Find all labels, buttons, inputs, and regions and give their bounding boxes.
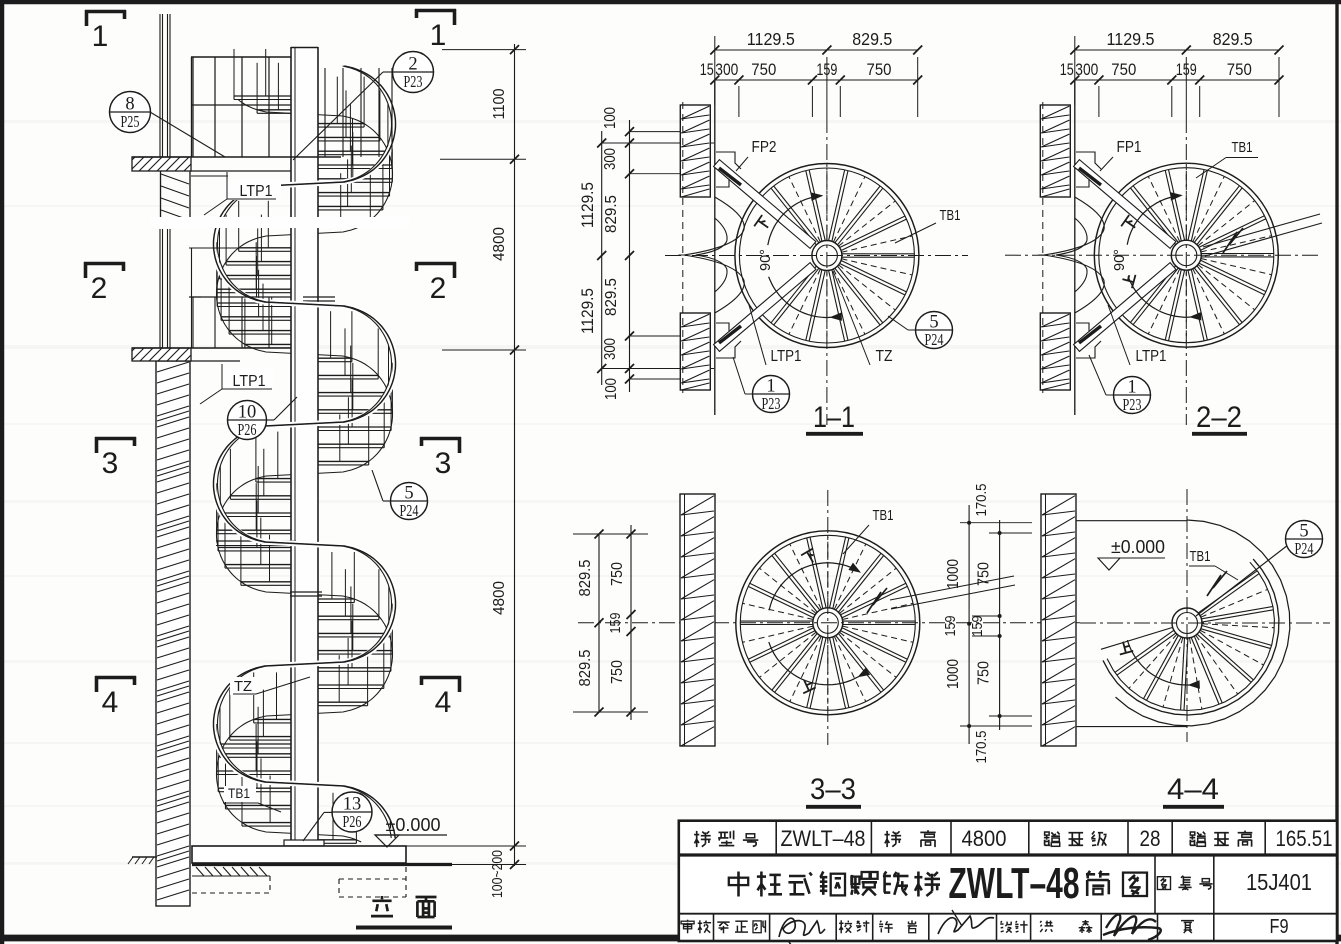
svg-text:LTP1: LTP1 bbox=[1136, 348, 1167, 365]
svg-text:90°: 90° bbox=[758, 249, 774, 271]
svg-text:170.5: 170.5 bbox=[973, 731, 990, 764]
svg-text:LTP1: LTP1 bbox=[771, 348, 802, 365]
svg-text:1000: 1000 bbox=[945, 659, 962, 689]
svg-text:165.51: 165.51 bbox=[1276, 826, 1333, 851]
svg-text:TB1: TB1 bbox=[873, 507, 894, 524]
svg-text:P23: P23 bbox=[404, 72, 423, 91]
svg-text:1129.5: 1129.5 bbox=[1107, 29, 1155, 49]
svg-text:4–4: 4–4 bbox=[1167, 773, 1219, 806]
svg-text:100: 100 bbox=[602, 107, 619, 129]
svg-text:1129.5: 1129.5 bbox=[579, 182, 597, 228]
svg-text:15J401: 15J401 bbox=[1246, 869, 1312, 895]
svg-text:1000: 1000 bbox=[945, 559, 962, 589]
svg-text:3: 3 bbox=[435, 447, 452, 480]
svg-text:750: 750 bbox=[976, 562, 993, 586]
svg-text:300: 300 bbox=[602, 148, 619, 170]
svg-text:750: 750 bbox=[1227, 60, 1252, 79]
svg-text:159: 159 bbox=[969, 616, 986, 637]
svg-text:829.5: 829.5 bbox=[603, 195, 620, 233]
svg-text:1129.5: 1129.5 bbox=[747, 29, 795, 49]
svg-text:LTP1: LTP1 bbox=[233, 373, 266, 390]
svg-text:300: 300 bbox=[715, 60, 738, 79]
svg-text:300: 300 bbox=[602, 338, 619, 360]
svg-text:750: 750 bbox=[751, 60, 776, 79]
svg-text:170.5: 170.5 bbox=[973, 484, 990, 517]
svg-text:28: 28 bbox=[1140, 826, 1161, 851]
svg-text:750: 750 bbox=[609, 660, 626, 684]
svg-text:P26: P26 bbox=[343, 812, 362, 831]
svg-text:100: 100 bbox=[603, 378, 620, 400]
svg-text:2–2: 2–2 bbox=[1196, 401, 1242, 434]
svg-text:P24: P24 bbox=[400, 501, 419, 520]
svg-text:3: 3 bbox=[102, 447, 119, 480]
svg-text:15: 15 bbox=[1060, 60, 1074, 79]
svg-text:15: 15 bbox=[700, 60, 714, 79]
svg-text:FP1: FP1 bbox=[1117, 139, 1142, 156]
svg-text:TB1: TB1 bbox=[1232, 139, 1253, 156]
svg-text:LTP1: LTP1 bbox=[240, 183, 273, 200]
svg-text:P23: P23 bbox=[762, 394, 781, 413]
svg-text:1–1: 1–1 bbox=[813, 401, 855, 434]
svg-text:2: 2 bbox=[430, 272, 447, 305]
svg-text:4: 4 bbox=[435, 686, 452, 719]
svg-text:P26: P26 bbox=[238, 420, 257, 439]
svg-text:ZWLT–48: ZWLT–48 bbox=[949, 859, 1080, 908]
svg-text:829.5: 829.5 bbox=[603, 278, 620, 316]
svg-text:1: 1 bbox=[430, 19, 447, 52]
svg-text:1129.5: 1129.5 bbox=[579, 288, 597, 334]
svg-text:4800: 4800 bbox=[962, 826, 1007, 851]
svg-text:±0.000: ±0.000 bbox=[386, 814, 441, 835]
svg-text:P24: P24 bbox=[1295, 539, 1314, 558]
svg-text:300: 300 bbox=[1075, 60, 1098, 79]
svg-text:1: 1 bbox=[92, 20, 109, 53]
svg-text:TZ: TZ bbox=[876, 348, 893, 365]
svg-text:90°: 90° bbox=[1112, 249, 1128, 271]
svg-text:829.5: 829.5 bbox=[577, 650, 594, 687]
svg-text:3–3: 3–3 bbox=[810, 773, 856, 806]
svg-text:750: 750 bbox=[867, 60, 892, 79]
svg-text:F9: F9 bbox=[1270, 916, 1289, 938]
svg-text:TZ: TZ bbox=[234, 678, 252, 695]
svg-text:P24: P24 bbox=[925, 330, 944, 349]
svg-text:829.5: 829.5 bbox=[1213, 29, 1253, 49]
svg-text:TB1: TB1 bbox=[940, 207, 961, 224]
svg-text:750: 750 bbox=[976, 661, 993, 685]
svg-text:P25: P25 bbox=[121, 112, 140, 131]
svg-text:TB1: TB1 bbox=[1190, 548, 1211, 565]
svg-text:4: 4 bbox=[102, 686, 119, 719]
svg-text:1100: 1100 bbox=[491, 88, 508, 119]
svg-text:829.5: 829.5 bbox=[577, 560, 594, 597]
svg-text:4800: 4800 bbox=[491, 581, 508, 615]
svg-text:±0.000: ±0.000 bbox=[1111, 537, 1165, 557]
svg-text:750: 750 bbox=[609, 562, 626, 586]
svg-text:750: 750 bbox=[1111, 60, 1136, 79]
svg-text:FP2: FP2 bbox=[752, 139, 777, 156]
svg-text:4800: 4800 bbox=[491, 227, 508, 261]
svg-text:P23: P23 bbox=[1123, 395, 1142, 414]
svg-text:TB1: TB1 bbox=[228, 785, 250, 801]
svg-text:2: 2 bbox=[91, 272, 108, 305]
svg-text:100~200: 100~200 bbox=[489, 850, 506, 898]
svg-text:159: 159 bbox=[942, 616, 959, 637]
svg-text:829.5: 829.5 bbox=[852, 29, 892, 49]
svg-text:ZWLT–48: ZWLT–48 bbox=[781, 826, 866, 851]
